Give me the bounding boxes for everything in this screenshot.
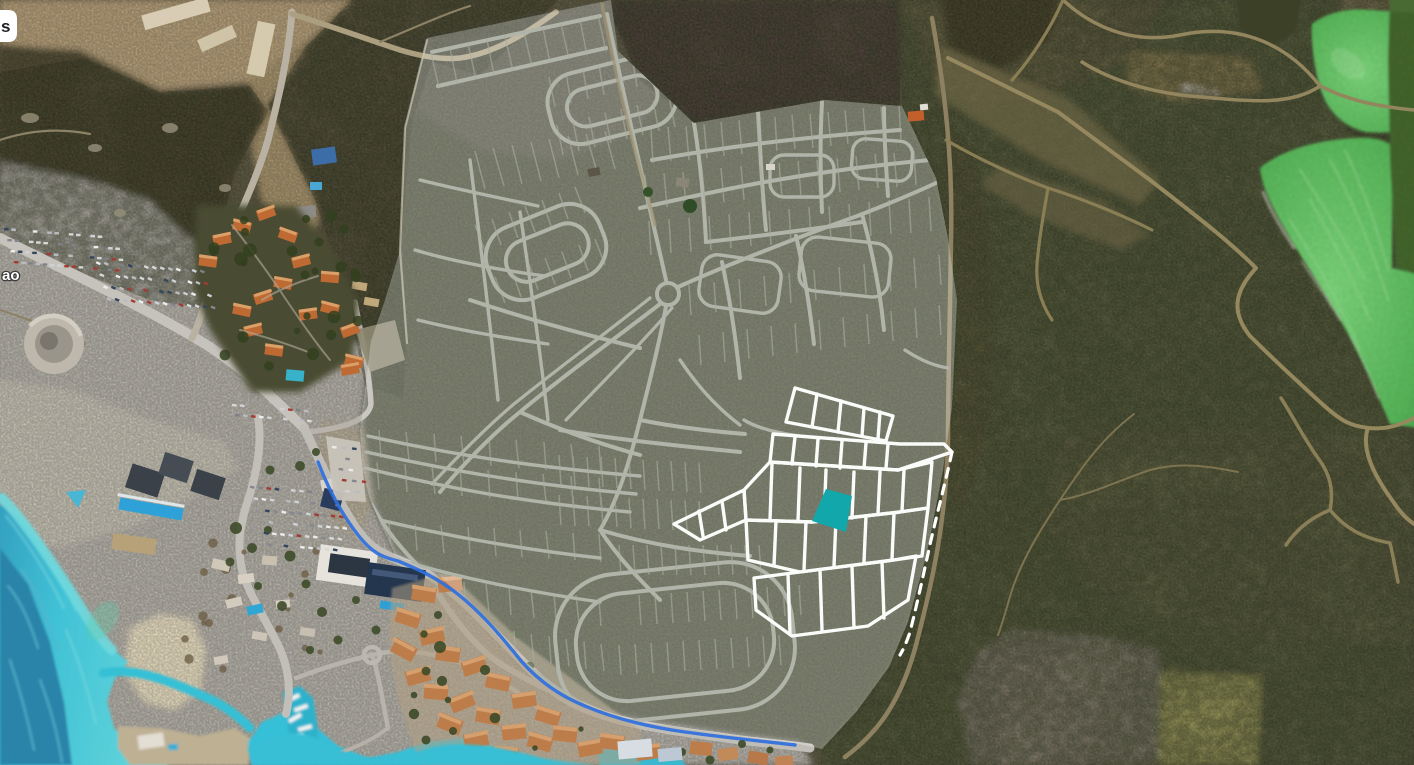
svg-text:ao: ao bbox=[2, 267, 20, 284]
svg-text:s: s bbox=[1, 17, 10, 36]
